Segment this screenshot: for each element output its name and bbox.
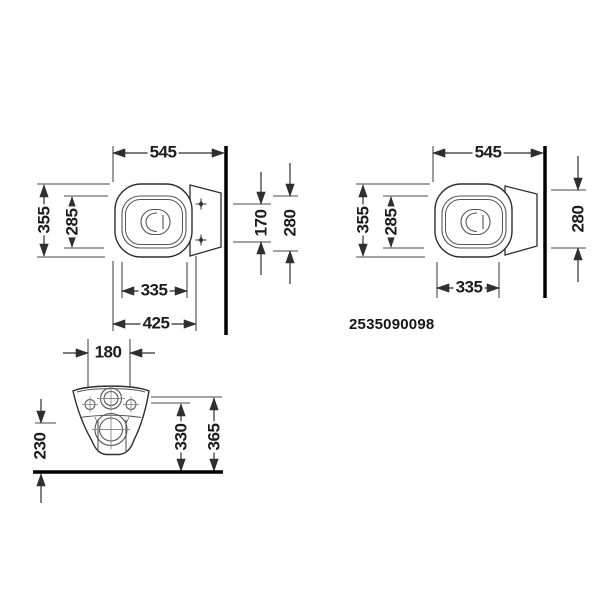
- dim-label-outlet-height: 330: [173, 422, 190, 453]
- top-view-with-fixings: [37, 146, 298, 335]
- product-number: 2535090098: [349, 317, 434, 332]
- dim-label-rim-width-right: 285: [383, 207, 400, 238]
- dim-label-rim-length-left: 335: [139, 282, 170, 299]
- dim-label-outer-width-right: 355: [355, 205, 372, 236]
- dim-label-rim-width-left: 285: [64, 207, 81, 238]
- toilet-front-outline: [73, 386, 149, 455]
- dim-label-bottom-height: 230: [32, 431, 49, 462]
- dim-label-total-depth-right: 545: [473, 144, 504, 161]
- dim-label-outer-width-left: 355: [36, 205, 53, 236]
- dim-label-fixing-distance: 170: [253, 208, 270, 239]
- dim-label-rim-length-right: 335: [454, 279, 485, 296]
- dim-label-total-depth-left: 545: [148, 144, 179, 161]
- dim-label-rim-height: 365: [206, 422, 223, 453]
- technical-drawing-sheet: 545 355 285 170 280 335 425 545 355 285 …: [0, 0, 600, 600]
- dim-label-rear-width-right: 280: [570, 204, 587, 235]
- drawing-geometry: [0, 0, 600, 600]
- front-view: [33, 339, 223, 503]
- dim-label-rear-width-left: 280: [282, 208, 299, 239]
- dim-label-front-fixing-distance: 180: [93, 344, 124, 361]
- dim-label-bowl-depth: 425: [141, 315, 172, 332]
- toilet-top-outline: [115, 184, 221, 257]
- toilet-top-outline: [435, 184, 537, 257]
